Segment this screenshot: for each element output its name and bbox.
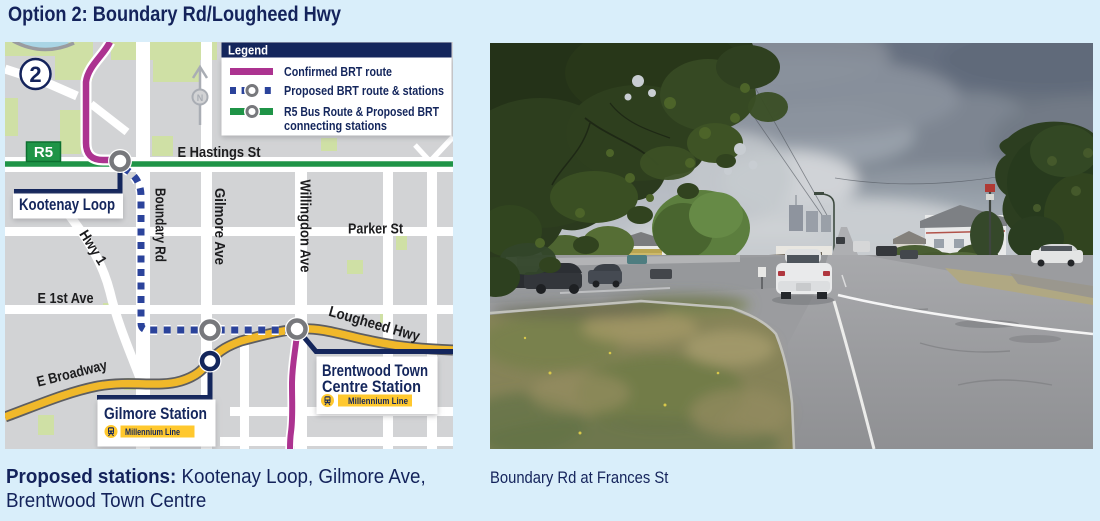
svg-text:2: 2 [29,62,41,87]
svg-text:Millennium Line: Millennium Line [125,427,180,438]
svg-text:Boundary Rd: Boundary Rd [152,188,168,262]
svg-text:R5: R5 [34,144,53,161]
svg-text:Kootenay Loop: Kootenay Loop [19,196,115,214]
svg-text:Proposed BRT route & stations: Proposed BRT route & stations [284,83,444,98]
svg-text:Legend: Legend [228,44,268,58]
svg-text:E Hastings St: E Hastings St [178,145,261,161]
svg-text:Gilmore Ave: Gilmore Ave [211,188,227,265]
svg-text:Centre Station: Centre Station [322,377,421,396]
svg-text:R5 Bus Route & Proposed BRT: R5 Bus Route & Proposed BRT [284,104,439,119]
svg-text:Millennium Line: Millennium Line [348,396,408,407]
svg-text:Parker St: Parker St [348,222,403,238]
svg-text:Confirmed BRT route: Confirmed BRT route [284,64,392,79]
svg-text:Gilmore Station: Gilmore Station [104,404,207,423]
svg-text:Willingdon Ave: Willingdon Ave [297,180,313,273]
svg-text:E 1st Ave: E 1st Ave [38,291,94,307]
svg-text:N: N [197,93,204,103]
svg-text:connecting stations: connecting stations [284,118,387,133]
